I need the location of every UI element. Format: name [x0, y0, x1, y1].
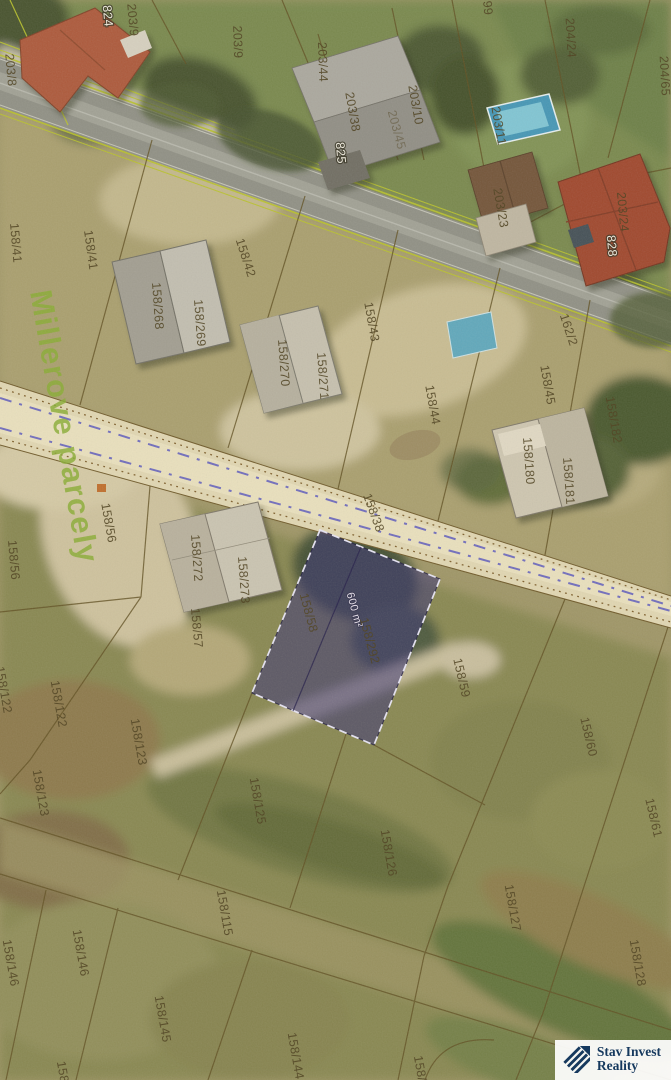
stav-invest-logo-icon: [563, 1046, 590, 1073]
warm-tint-overlay: [0, 0, 671, 1080]
logo-line1: Stav Invest: [597, 1045, 661, 1060]
cadastral-map-screenshot: 824203/9203/8203/9203/44203/38203/458252…: [0, 0, 671, 1080]
cadastral-aerial-map: 824203/9203/8203/9203/44203/38203/458252…: [0, 0, 671, 1080]
agency-logo: Stav Invest Reality: [555, 1040, 671, 1080]
logo-line2: Reality: [597, 1059, 661, 1074]
logo-text: Stav Invest Reality: [597, 1045, 661, 1074]
